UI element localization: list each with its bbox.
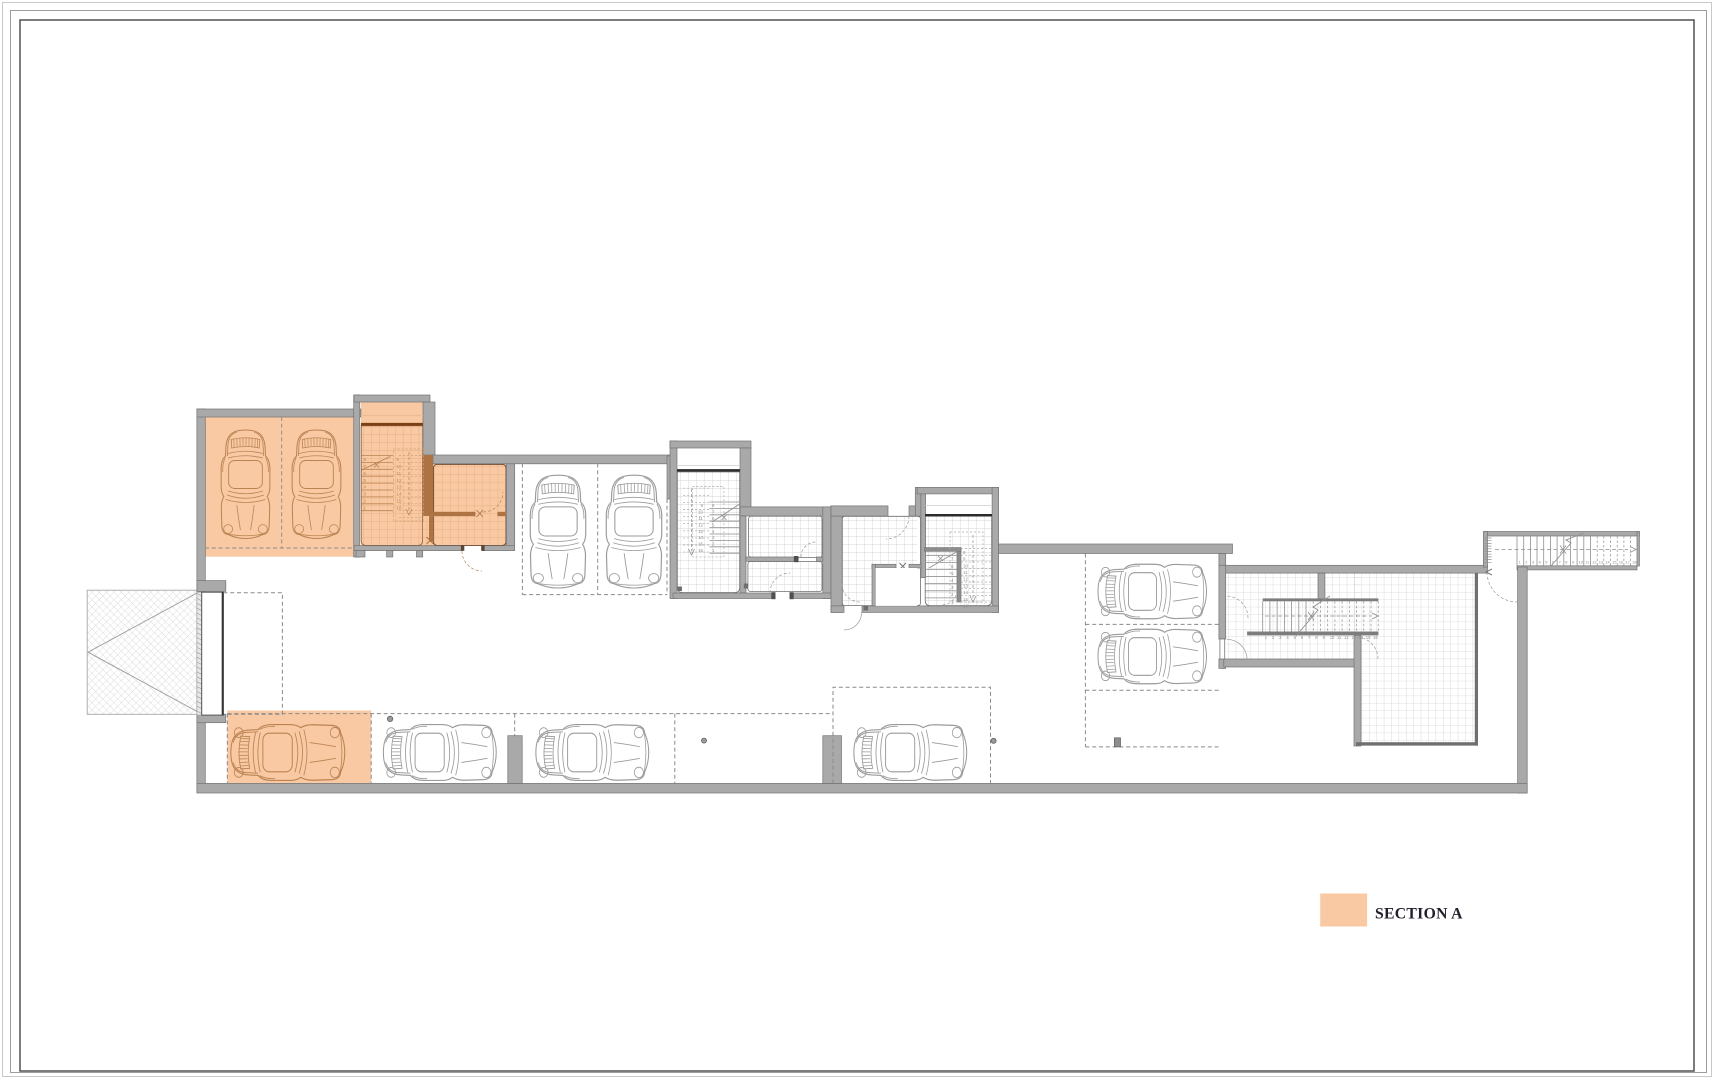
svg-text:16: 16 — [397, 505, 402, 510]
svg-text:15: 15 — [963, 597, 968, 602]
svg-text:16: 16 — [1373, 635, 1378, 640]
svg-text:13: 13 — [397, 485, 402, 490]
svg-text:10: 10 — [397, 464, 402, 469]
svg-text:12: 12 — [698, 522, 703, 527]
svg-text:10: 10 — [1579, 560, 1584, 565]
svg-text:14: 14 — [698, 535, 703, 540]
svg-text:16: 16 — [698, 548, 703, 553]
svg-text:12: 12 — [1344, 635, 1349, 640]
svg-text:SECTION A: SECTION A — [1375, 906, 1463, 923]
svg-text:11: 11 — [397, 471, 402, 476]
svg-text:12: 12 — [1592, 560, 1597, 565]
svg-text:10: 10 — [963, 563, 968, 568]
svg-text:14: 14 — [1605, 560, 1610, 565]
svg-text:15: 15 — [1366, 635, 1371, 640]
svg-text:12: 12 — [397, 478, 402, 483]
svg-text:15: 15 — [1612, 560, 1617, 565]
svg-text:14: 14 — [397, 492, 402, 497]
svg-text:15: 15 — [698, 542, 703, 547]
svg-text:15: 15 — [397, 499, 402, 504]
svg-text:13: 13 — [698, 529, 703, 534]
svg-text:11: 11 — [963, 570, 968, 575]
svg-text:10: 10 — [1330, 635, 1335, 640]
svg-text:13: 13 — [1351, 635, 1356, 640]
svg-text:12: 12 — [963, 577, 968, 582]
svg-text:17: 17 — [1625, 560, 1630, 565]
svg-text:16: 16 — [1619, 560, 1624, 565]
svg-text:13: 13 — [963, 583, 968, 588]
svg-text:16: 16 — [963, 604, 968, 609]
svg-text:11: 11 — [1337, 635, 1342, 640]
svg-text:10: 10 — [698, 510, 703, 515]
svg-text:11: 11 — [698, 516, 703, 521]
svg-text:13: 13 — [1599, 560, 1604, 565]
svg-text:14: 14 — [963, 590, 968, 595]
svg-text:18: 18 — [1632, 560, 1637, 565]
